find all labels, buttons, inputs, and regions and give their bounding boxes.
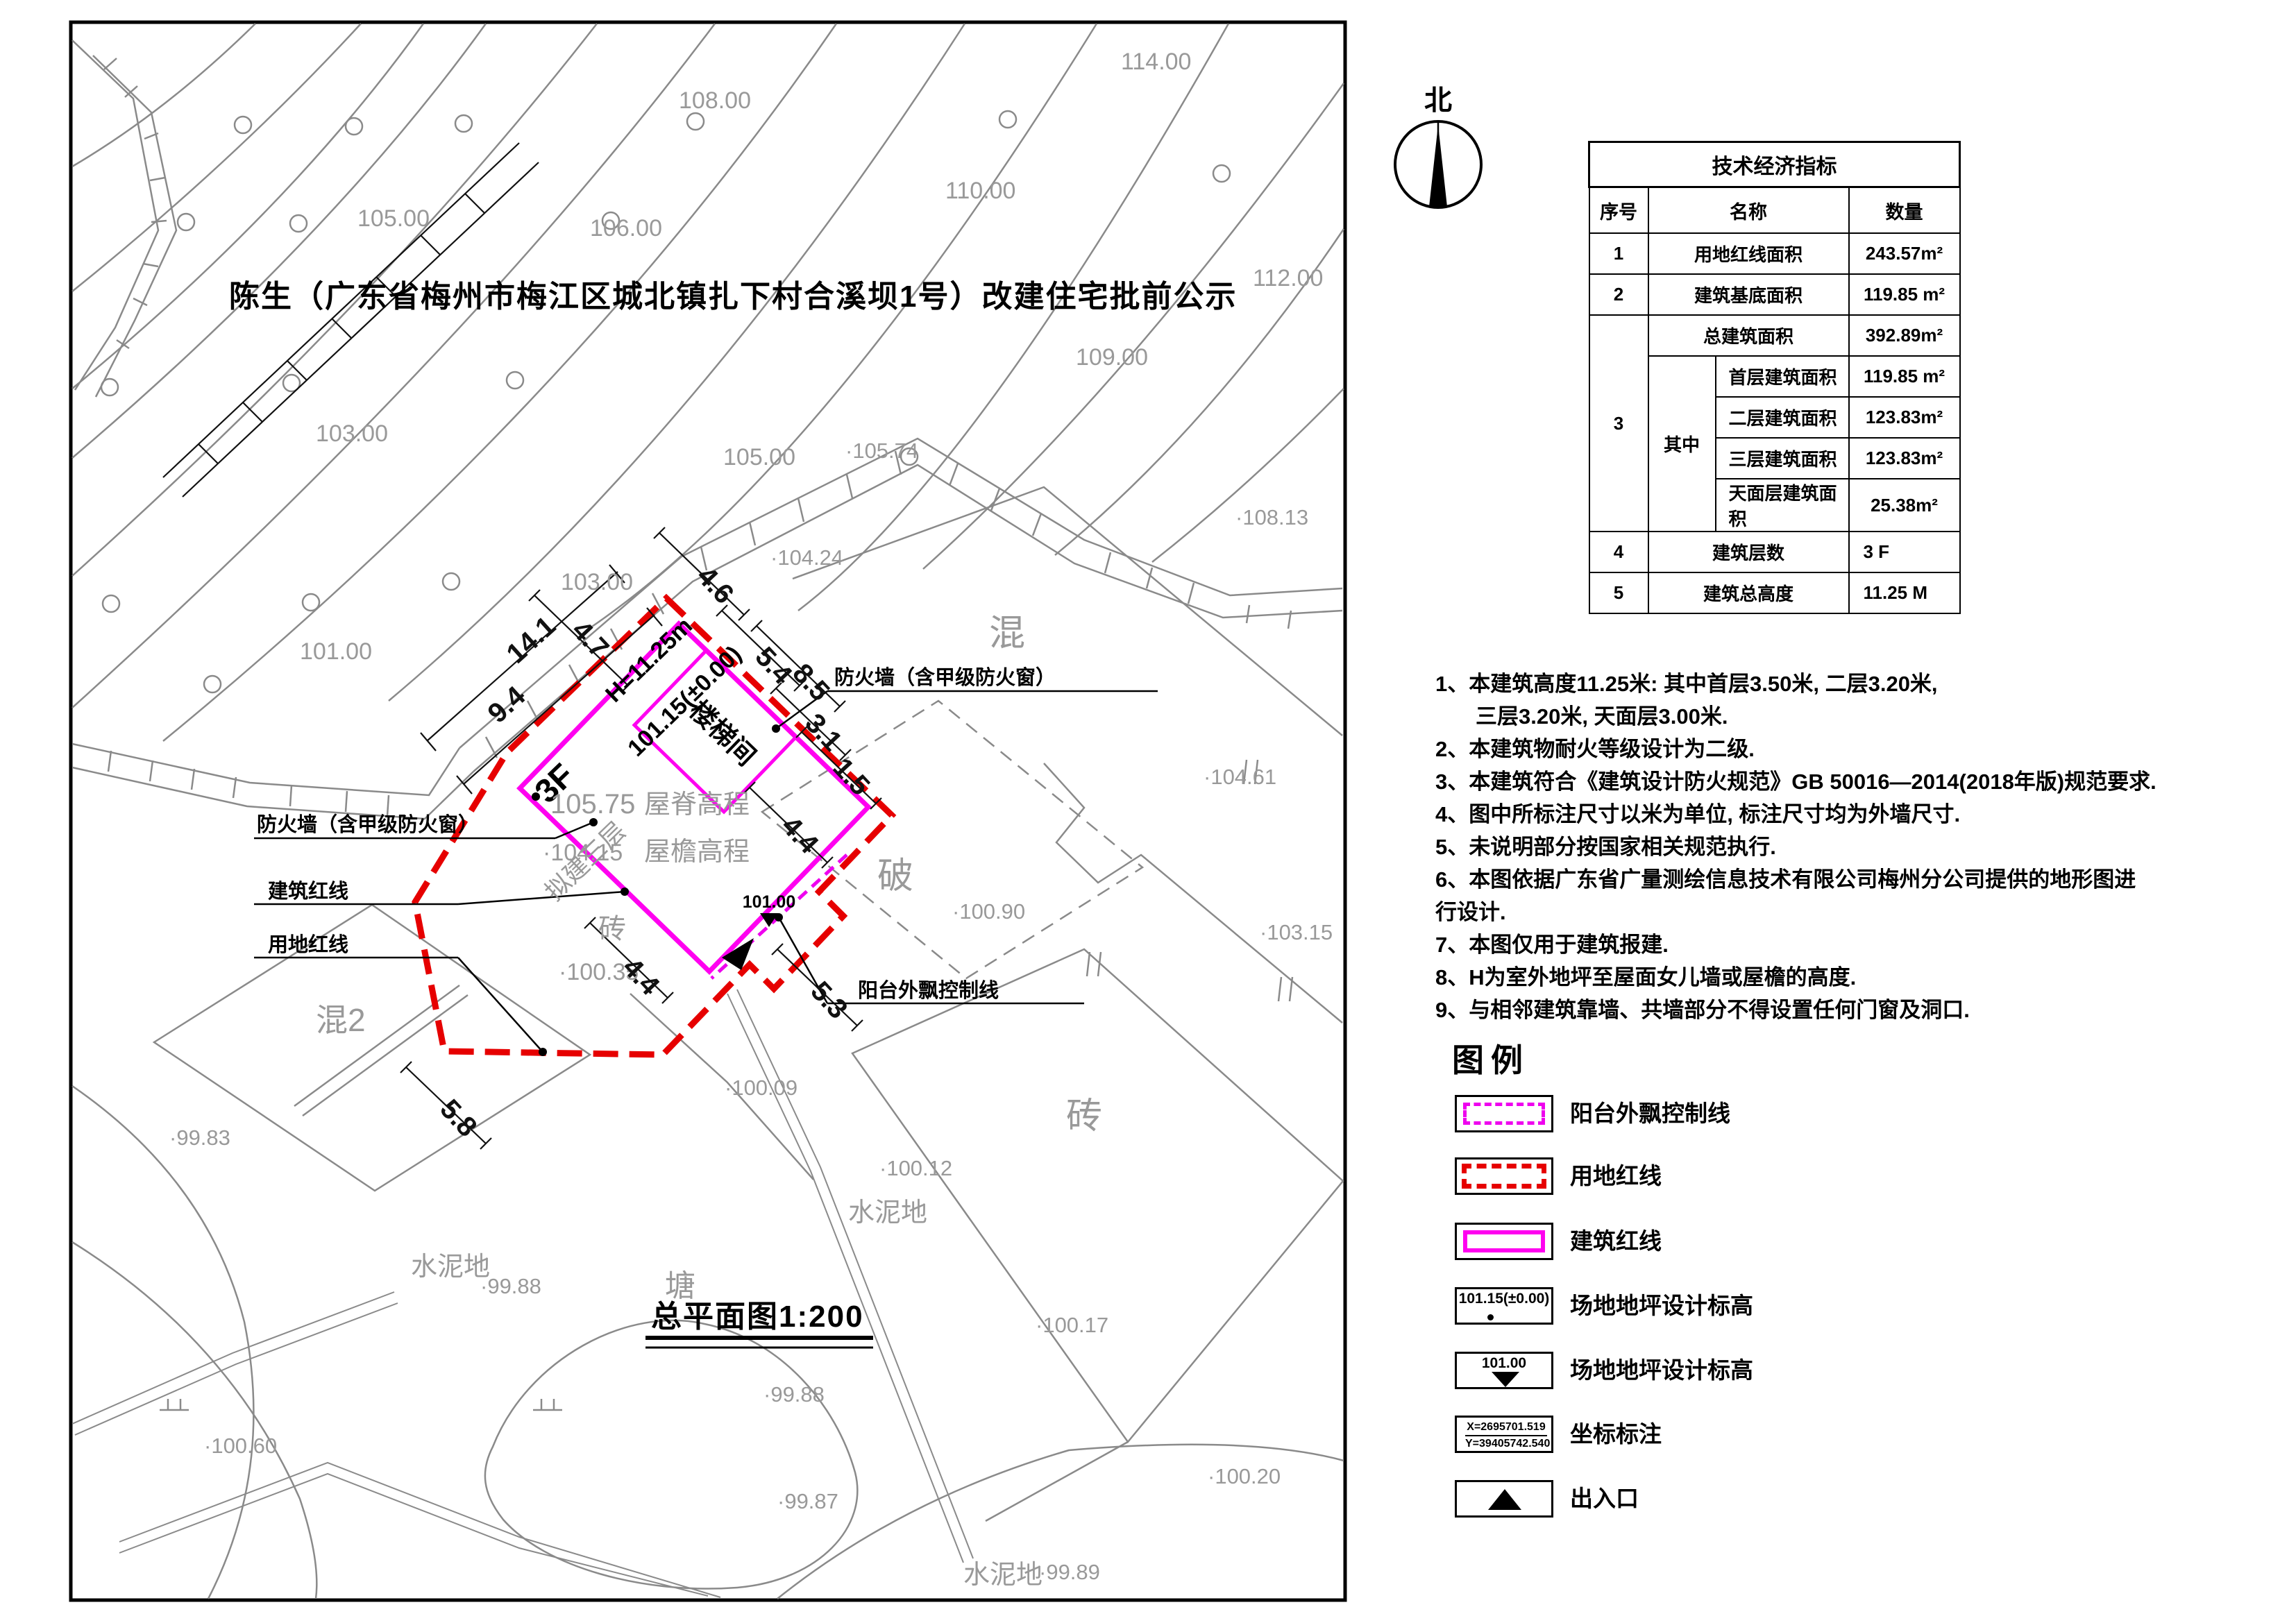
row5-qty: 11.25 M [1849,572,1960,613]
svg-text:·105.74: ·105.74 [845,439,918,463]
entry-level-label: 101.00 [743,892,795,912]
row3-sub1-qty: 119.85 m² [1849,356,1960,397]
row3-sub4-qty: 25.38m² [1849,479,1960,532]
indoor-level-value: 101.15(±0.00) [1457,1291,1551,1307]
row3-sub2-qty: 123.83m² [1849,397,1960,438]
svg-text:·100.60: ·100.60 [204,1434,277,1458]
legend-swatch-building-line [1455,1223,1553,1260]
svg-text:·100.20: ·100.20 [1208,1464,1281,1488]
drawing-sheet: 北 陈生（广东省梅州市梅江区城北镇扎下村合溪坝1号）改建住宅批前公示 总平面图1… [0,0,2296,1623]
site-line-callout: 用地红线 [268,933,348,956]
svg-text:105.00: 105.00 [723,444,795,470]
row4-qty: 3 F [1849,532,1960,572]
legend-swatch-coords: X=2695701.519 Y=39405742.540 [1455,1416,1553,1453]
svg-text:·104.24: ·104.24 [770,545,843,570]
drawing-title: 总平面图1:200 [651,1300,864,1334]
row2-qty: 119.85 m² [1849,274,1960,315]
svg-text:110.00: 110.00 [945,178,1015,204]
svg-text:·99.83: ·99.83 [169,1125,230,1150]
row5-no: 5 [1589,572,1648,613]
legend-swatch-indoor-level: 101.15(±0.00) [1455,1287,1553,1325]
legend-label-coords: 坐标标注 [1570,1416,1662,1453]
row3-sub4-name: 天面层建筑面积 [1716,479,1849,532]
svg-text:砖: 砖 [1066,1096,1102,1137]
svg-text:·99.88: ·99.88 [763,1382,825,1407]
note-line: 7、本图仅用于建筑报建. [1435,928,2157,961]
svg-text:105.00: 105.00 [357,205,430,232]
stair-room-label: 楼梯间 [684,696,761,772]
svg-text:混: 混 [989,613,1025,654]
building-red-line-swatch [1463,1230,1545,1252]
note-line: 1、本建筑高度11.25米: 其中首层3.50米, 二层3.20米, [1435,668,2157,700]
legend-swatch-entrance [1455,1480,1553,1518]
row3-total-qty: 392.89m² [1849,315,1960,356]
row5-name: 建筑总高度 [1648,572,1849,613]
legend-label-site-level: 场地地坪设计标高 [1570,1352,1753,1389]
north-label: 北 [1424,85,1452,116]
legend-label-balcony: 阳台外飘控制线 [1570,1095,1730,1132]
svg-text:混2: 混2 [316,1002,366,1038]
balcony-line-callout: 阳台外飘控制线 [858,978,999,1002]
note-line: 5、未说明部分按国家相关规范执行. [1435,831,2157,863]
coord-annotation: X=2695701.519 Y=39405742.540 [1465,1420,1547,1452]
row1-no: 1 [1589,233,1648,274]
note-line: 2、本建筑物耐火等级设计为二级. [1435,733,2157,765]
row3-sub1-name: 首层建筑面积 [1716,356,1849,397]
legend-title: 图例 [1452,1035,1530,1081]
svg-text:103.00: 103.00 [561,569,633,595]
note-line: 三层3.20米, 天面层3.00米. [1435,700,2157,733]
row1-name: 用地红线面积 [1648,233,1849,274]
svg-text:砖: 砖 [598,914,626,944]
firewall-callout-right: 防火墙（含甲级防火窗） [834,665,1056,689]
row3-sub3-name: 三层建筑面积 [1716,438,1849,479]
row2-name: 建筑基底面积 [1648,274,1849,315]
coord-y: Y=39405742.540 [1465,1436,1547,1452]
svg-text:106.00: 106.00 [590,215,662,241]
svg-text:103.00: 103.00 [316,420,388,447]
col-name-header: 名称 [1648,187,1849,234]
area-labels: 混 破 混2 砖 砖 水泥地 水泥地 水泥地 塘 [316,613,1102,1590]
note-line: 9、与相邻建筑靠墙、共墙部分不得设置任何门窗及洞口. [1435,994,2157,1026]
row2-no: 2 [1589,274,1648,315]
econ-table: 技术经济指标 序号 名称 数量 1 用地红线面积 243.57m² 2 建筑基底… [1588,141,1959,614]
legend-swatch-site-line [1455,1157,1553,1195]
svg-text:·103.15: ·103.15 [1260,920,1333,944]
notes-list: 1、本建筑高度11.25米: 其中首层3.50米, 二层3.20米, 三层3.2… [1435,668,2157,1026]
eave-label: 屋檐高程 [644,838,750,867]
svg-text:·100.12: ·100.12 [879,1156,952,1180]
site-level-value: 101.00 [1457,1355,1551,1372]
row4-no: 4 [1589,532,1648,572]
row1-qty: 243.57m² [1849,233,1960,274]
site-red-line-swatch [1462,1164,1546,1189]
row3-total-name: 总建筑面积 [1648,315,1849,356]
svg-text:水泥地: 水泥地 [848,1198,927,1227]
note-line: 8、H为室外地坪至屋面女儿墙或屋檐的高度. [1435,961,2157,994]
row3-sub2-name: 二层建筑面积 [1716,397,1849,438]
balcony-line-swatch [1463,1103,1545,1125]
row3-sub3-qty: 123.83m² [1849,438,1960,479]
svg-text:·100.90: ·100.90 [952,899,1025,924]
coord-x: X=2695701.519 [1465,1420,1547,1436]
entrance-triangle-icon [1488,1489,1521,1510]
north-arrow: 北 [1395,85,1481,207]
indoor-level-dot-icon [1487,1314,1494,1320]
svg-text:·99.87: ·99.87 [777,1489,838,1513]
note-line: 6、本图依据广东省广量测绘信息技术有限公司梅州分公司提供的地形图进行设计. [1435,863,2157,928]
svg-text:水泥地: 水泥地 [411,1252,490,1282]
svg-text:·100.09: ·100.09 [725,1076,797,1100]
legend-label-entrance: 出入口 [1570,1480,1639,1518]
svg-text:·108.13: ·108.13 [1235,505,1308,529]
legend-label-site-line: 用地红线 [1570,1157,1662,1195]
row3-no: 3 [1589,315,1648,532]
ridge-label: 屋脊高程 [644,790,750,819]
legend-label-indoor-level: 场地地坪设计标高 [1570,1287,1753,1325]
legend-swatch-balcony [1455,1095,1553,1132]
svg-text:14.1: 14.1 [501,611,562,670]
legend-label-building-line: 建筑红线 [1570,1223,1662,1260]
svg-text:·104.61: ·104.61 [1204,765,1276,789]
svg-text:·100.17: ·100.17 [1036,1313,1108,1337]
building-line-callout: 建筑红线 [268,880,348,903]
note-line: 3、本建筑符合《建筑设计防火规范》GB 50016—2014(2018年版)规范… [1435,765,2157,798]
svg-text:101.00: 101.00 [300,638,372,665]
firewall-callout-left: 防火墙（含甲级防火窗） [257,813,478,836]
svg-text:114.00: 114.00 [1121,49,1191,75]
svg-text:水泥地: 水泥地 [963,1561,1043,1590]
table-title: 技术经济指标 [1589,142,1960,187]
row4-name: 建筑层数 [1648,532,1849,572]
svg-text:塘: 塘 [665,1269,695,1303]
col-index-header: 序号 [1589,187,1648,234]
ridge-level: 105.75 [550,789,635,819]
svg-text:108.00: 108.00 [679,87,751,114]
svg-text:破: 破 [877,856,913,897]
site-level-triangle-icon [1492,1372,1519,1387]
col-qty-header: 数量 [1849,187,1960,234]
svg-text:·99.89: ·99.89 [1039,1560,1100,1584]
callout-leaders [254,691,1158,1052]
notice-title: 陈生（广东省梅州市梅江区城北镇扎下村合溪坝1号）改建住宅批前公示 [229,280,1237,314]
svg-text:109.00: 109.00 [1076,344,1148,371]
svg-text:112.00: 112.00 [1253,265,1323,291]
row3-among: 其中 [1648,356,1716,532]
note-line: 4、图中所标注尺寸以米为单位, 标注尺寸均为外墙尺寸. [1435,798,2157,831]
legend-swatch-site-level: 101.00 [1455,1352,1553,1389]
